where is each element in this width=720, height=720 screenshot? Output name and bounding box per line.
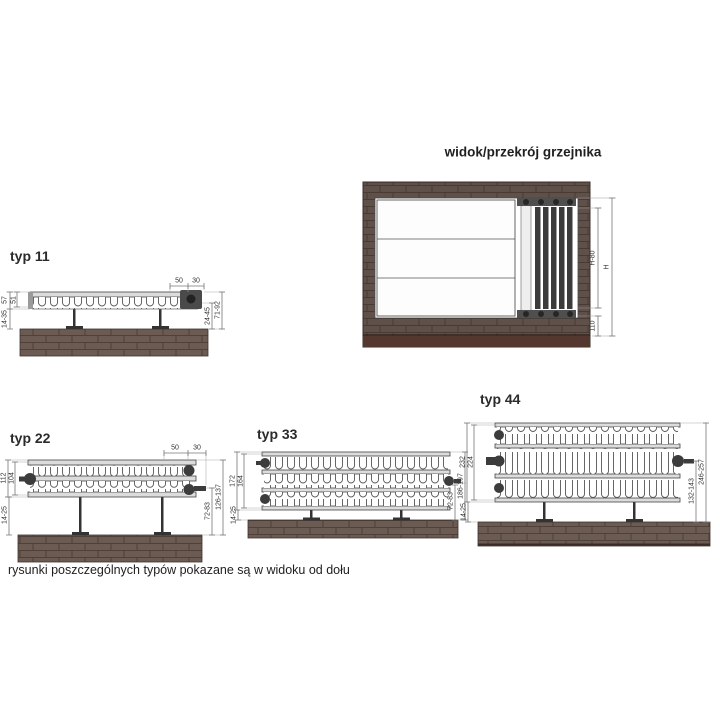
- typ22-dim-top-b: 30: [193, 445, 201, 452]
- convector-fin-row: [32, 297, 198, 309]
- convector-fin-row: [264, 474, 448, 488]
- typ44-dim-depth-panel: 224: [468, 456, 475, 468]
- typ44-dim-wall-total: 246-257: [699, 459, 706, 485]
- typ33-dim-wall-mid: 72-83: [448, 492, 455, 510]
- typ11-dim-depth-panel: 51: [11, 296, 18, 304]
- convector-fin-row: [264, 456, 448, 470]
- radiator-panel: [377, 200, 515, 316]
- typ22-dim-depth-panel: 104: [9, 472, 16, 484]
- typ11-dim-wall-total: 71-92: [215, 301, 222, 319]
- typ44-dim-wall-mid: 132-143: [689, 478, 696, 504]
- wall: [478, 522, 710, 546]
- convector-fin-row: [264, 492, 448, 506]
- floor-base-strip: [363, 336, 590, 347]
- typ44-dim-wall-gap: 14-25: [461, 503, 468, 521]
- typ22-dim-top-a: 50: [171, 445, 179, 452]
- typ11-dim-depth-total: 57: [2, 296, 9, 304]
- radiator-cross-section-drawing: [360, 178, 620, 353]
- radiator-types-diagram: widok/przekrój grzejnika: [0, 0, 720, 720]
- mounting-brackets: [536, 502, 643, 522]
- convector-fin-row: [497, 478, 678, 498]
- dim-label-height-total: H: [604, 264, 611, 269]
- typ11-dim-wall-mid: 24-45: [205, 307, 212, 325]
- main-view-title: widok/przekrój grzejnika: [445, 145, 602, 160]
- convector-fin-row: [30, 465, 194, 476]
- typ22-dim-wall-total: 126-137: [216, 484, 223, 510]
- typ11-dim-top-a: 50: [175, 278, 183, 285]
- convector-fin-row: [497, 427, 678, 444]
- typ22-dim-wall-gap: 14-25: [2, 506, 9, 524]
- typ22-label: typ 22: [10, 430, 50, 446]
- mounting-brackets: [303, 510, 410, 521]
- typ22-dim-wall-mid: 72-83: [205, 502, 212, 520]
- wall: [248, 520, 458, 538]
- dim-label-height-inner: H-80: [590, 250, 597, 265]
- mounting-brackets: [66, 309, 169, 329]
- convector-fin-row: [30, 481, 194, 492]
- typ22-dim-depth-total: 112: [1, 472, 8, 483]
- mounting-brackets: [72, 497, 171, 535]
- convector-fin-row: [497, 448, 678, 474]
- typ11-dim-top-b: 30: [192, 278, 200, 285]
- wall: [20, 329, 208, 356]
- bottom-caption: rysunki poszczególnych typów pokazane są…: [8, 563, 350, 577]
- typ33-drawing: [225, 443, 470, 543]
- wall: [18, 535, 202, 562]
- typ11-dim-wall-gap: 14-35: [2, 310, 9, 328]
- typ33-dim-depth-panel: 164: [238, 475, 245, 487]
- typ33-label: typ 33: [257, 426, 297, 442]
- typ11-label: typ 11: [10, 248, 50, 264]
- typ33-dim-depth-total: 172: [230, 475, 237, 487]
- dim-label-floor-clearance: 110: [590, 320, 597, 331]
- typ33-dim-wall-gap: 14-25: [231, 506, 238, 524]
- typ44-drawing: [455, 400, 720, 560]
- typ44-dim-depth-total: 232: [460, 456, 467, 468]
- panel-plate: [30, 292, 200, 297]
